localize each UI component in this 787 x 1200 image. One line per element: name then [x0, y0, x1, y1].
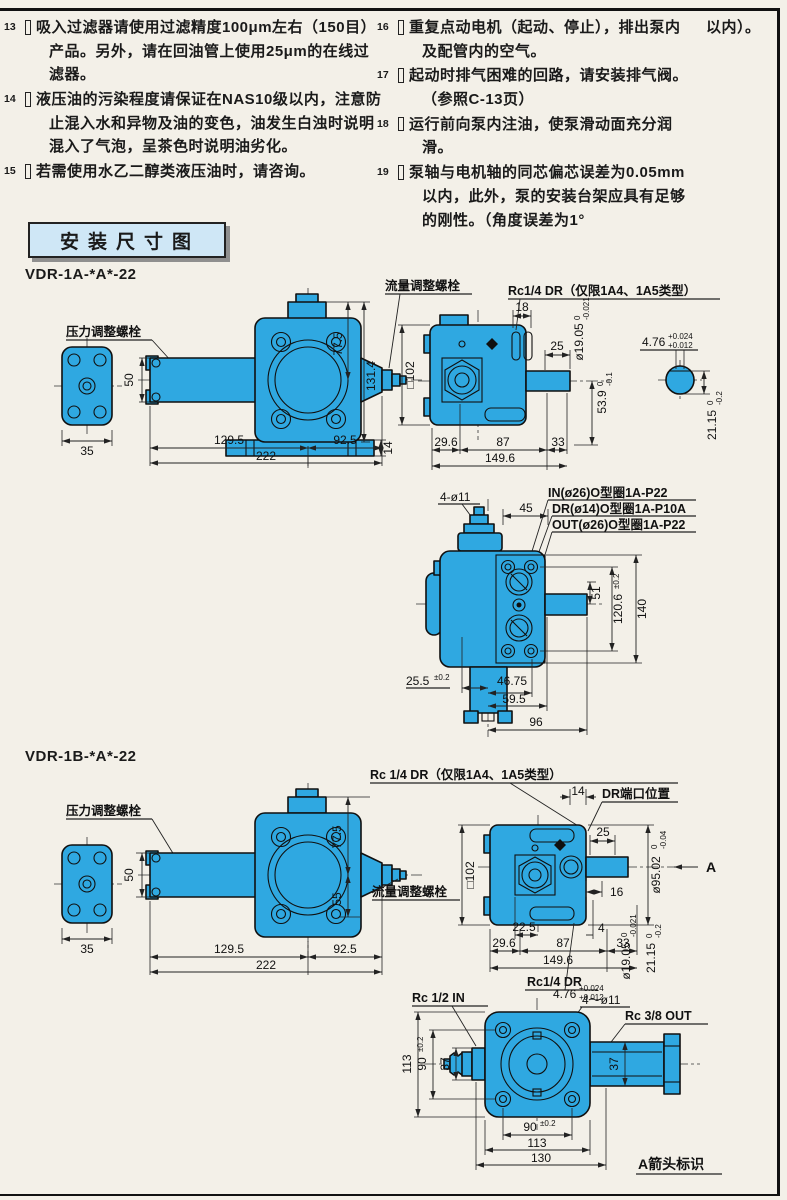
a-view-caption: A箭头标识	[636, 1156, 722, 1174]
dim-51: 51	[589, 586, 603, 600]
dim-37-right: 37	[607, 1057, 621, 1071]
svg-text:-0.2: -0.2	[715, 391, 724, 405]
dim-45: 45	[519, 501, 533, 515]
flange-view-1a: 35	[54, 338, 122, 458]
dim-16: 16	[610, 885, 624, 899]
note-text: 运行前向泵内注油，使泵滑动面充分润滑。	[409, 116, 673, 157]
svg-text:-0.04: -0.04	[659, 830, 668, 849]
note-19: 19泵轴与电机轴的同芯偏芯误差为0.05mm以内，此外，泵的安装台架应具有足够的…	[398, 161, 690, 232]
dim-25: 25	[596, 825, 610, 839]
dim-sq102: □102	[403, 361, 417, 389]
flange-view-1b: 35	[54, 837, 122, 956]
note-14: 14液压油的污染程度请保证在NAS10级以内，注意防止混入水和异物及油的变色，油…	[25, 88, 383, 159]
svg-text:0: 0	[645, 933, 654, 938]
model-label-vdr1b: VDR-1B-*A*-22	[25, 748, 137, 765]
dim-120-6: 120.6 ±0.2	[611, 573, 625, 624]
pump-side-view-1b	[138, 783, 422, 957]
svg-text:ø19.05: ø19.05	[619, 942, 633, 980]
note-text: 液压油的污染程度请保证在NAS10级以内，注意防止混入水和异物及油的变色，油发生…	[36, 91, 381, 155]
note-text: 若需使用水乙二醇类液压油时，请咨询。	[36, 163, 315, 180]
svg-text:ø19.05: ø19.05	[572, 323, 586, 361]
dim-92-5: 92.5	[333, 433, 357, 447]
rc38-out-label: Rc 3/8 OUT	[625, 1009, 692, 1023]
pump-side-view-1a	[138, 288, 422, 468]
svg-text:120.6: 120.6	[611, 594, 625, 624]
svg-text:±0.2: ±0.2	[612, 573, 621, 589]
dim-90-left: 90 ±0.2	[415, 1036, 429, 1071]
svg-text:-0.2: -0.2	[654, 924, 663, 938]
svg-text:53.9: 53.9	[595, 390, 609, 414]
dim-25-5: 25.5	[406, 674, 430, 688]
svg-text:0: 0	[706, 400, 715, 405]
dim-shaft-dia-19-b: ø19.05 0 -0.021	[619, 914, 638, 980]
dim-key-width: 4.76 +0.024 +0.012	[640, 332, 698, 369]
svg-text:+0.012: +0.012	[668, 341, 693, 350]
note-15: 15若需使用水乙二醇类液压油时，请咨询。	[25, 160, 383, 184]
dim-22-5: 22.5	[512, 920, 536, 934]
dim-222: 222	[256, 449, 276, 463]
note-17: 17起动时排气困难的回路，请安装排气阀。（参照C-13页）	[398, 64, 690, 111]
note-text: 起动时排气困难的回路，请安装排气阀。（参照C-13页）	[409, 67, 688, 108]
notes-column-2: 16重复点动电机（起动、停止），排出泵内及配管内的空气。 17起动时排气困难的回…	[398, 16, 690, 233]
dim-35: 35	[80, 444, 94, 458]
dim-77-5: 77.5	[331, 332, 345, 356]
section-title-box: 安装尺寸图	[28, 222, 226, 258]
dim-129-5: 129.5	[214, 433, 244, 447]
diagram-vdr1b: 35 压力调整螺栓 50	[30, 765, 760, 1000]
svg-text:ø95.02: ø95.02	[649, 856, 663, 894]
note-18: 18运行前向泵内注油，使泵滑动面充分润滑。	[398, 113, 690, 160]
svg-text:0: 0	[620, 932, 629, 937]
dim-95-02: ø95.02 0 -0.04	[649, 830, 668, 893]
dim-50: 50	[122, 868, 136, 882]
dim-4: 4	[598, 921, 605, 935]
svg-text:±0.2: ±0.2	[416, 1036, 425, 1052]
dim-50: 50	[122, 373, 136, 387]
in-oring-label: IN(ø26)O型圈1A-P22	[548, 485, 668, 500]
dim-46-75: 46.75	[497, 674, 527, 688]
dim-92-5: 92.5	[333, 942, 357, 956]
svg-text:0: 0	[573, 315, 582, 320]
dim-29-6: 29.6	[492, 936, 516, 950]
diagram-vdr1a: 35 压力调整螺栓	[30, 280, 730, 480]
diagram-a-view: Rc 1/2 IN 4～ø11 Rc 3/8 OUT	[400, 990, 760, 1185]
svg-text:0: 0	[596, 381, 605, 386]
dim-96: 96	[529, 715, 543, 729]
dr-oring-label: DR(ø14)O型圈1A-P10A	[552, 501, 686, 516]
dr-port-label: DR端口位置	[602, 786, 671, 801]
dim-37-left: 37	[438, 1057, 452, 1071]
catalog-page: 13吸入过滤器请使用过滤精度100μm左右（150目）产品。另外，请在回油管上使…	[0, 0, 787, 1200]
diagram-vdr1a-ports: IN(ø26)O型圈1A-P22 DR(ø14)O型圈1A-P10A OUT(ø…	[400, 485, 700, 745]
shaft-end-view-1a: 4.76 +0.024 +0.012 21.15 0 -0.2	[640, 332, 724, 440]
svg-text:±0.2: ±0.2	[540, 1119, 556, 1128]
dim-35: 35	[80, 942, 94, 956]
dim-222: 222	[256, 958, 276, 972]
pressure-screw-label: 压力调整螺栓	[66, 803, 142, 818]
svg-text:21.15: 21.15	[705, 410, 719, 440]
svg-text:+0.024: +0.024	[668, 332, 693, 341]
dim-53-9: 53.9 0 -0.1	[595, 372, 614, 414]
view-arrow-a: A	[706, 859, 716, 875]
a-view-label: A箭头标识	[638, 1156, 704, 1172]
dim-77-5: 77.5	[330, 825, 344, 849]
note-number: 19	[398, 165, 404, 180]
note-text: 泵轴与电机轴的同芯偏芯误差为0.05mm以内，此外，泵的安装台架应具有足够的刚性…	[409, 164, 686, 228]
svg-text:-0.1: -0.1	[605, 372, 614, 386]
dim-21-15: 21.15 0 -0.2	[705, 391, 724, 440]
notes-continuation: 以内）。	[706, 16, 776, 40]
rc12-in-label: Rc 1/2 IN	[412, 991, 465, 1005]
dr-port-position-callout: 14 DR端口位置	[560, 784, 678, 831]
dim-87: 87	[556, 936, 570, 950]
dim-140: 140	[635, 599, 649, 619]
dim-59-5: 59.5	[502, 692, 526, 706]
dim-sq102: □102	[463, 861, 477, 889]
note-19-continued: 以内）。	[706, 19, 761, 36]
notes-column-1: 13吸入过滤器请使用过滤精度100μm左右（150目）产品。另外，请在回油管上使…	[25, 16, 383, 185]
dim-87: 87	[496, 435, 510, 449]
note-13: 13吸入过滤器请使用过滤精度100μm左右（150目）产品。另外，请在回油管上使…	[25, 16, 383, 87]
out-oring-label: OUT(ø26)O型圈1A-P22	[552, 517, 685, 532]
note-number: 16	[398, 20, 404, 35]
section-title: 安装尺寸图	[60, 227, 200, 254]
note-number: 14	[25, 92, 31, 107]
dim-18: 18	[515, 300, 529, 314]
dim-14-dr: 14	[571, 784, 585, 798]
svg-text:-0.021: -0.021	[582, 297, 591, 320]
note-number: 13	[25, 20, 31, 35]
dim-4xd11: 4～ø11	[582, 993, 621, 1007]
dim-29-6: 29.6	[434, 435, 458, 449]
pressure-screw-label: 压力调整螺栓	[66, 324, 142, 339]
note-text: 重复点动电机（起动、停止），排出泵内及配管内的空气。	[409, 19, 681, 60]
svg-text:4.76: 4.76	[642, 335, 666, 349]
dim-25: 25	[550, 339, 564, 353]
dim-90-bottom: 90	[523, 1120, 537, 1134]
dim-130: 130	[531, 1151, 551, 1165]
note-number: 17	[398, 68, 404, 83]
dim-131-4: 131.4	[364, 361, 378, 391]
dim-149-6: 149.6	[485, 451, 515, 465]
dim-21-15-b: 21.15 0 -0.2	[644, 924, 663, 973]
svg-text:21.15: 21.15	[644, 943, 658, 973]
flow-screw-label: 流量调整螺栓	[372, 884, 448, 899]
note-number: 15	[25, 164, 31, 179]
dim-55: 55	[330, 892, 344, 906]
dim-shaft-dia-19: ø19.05 0 -0.021	[572, 297, 591, 361]
svg-text:±0.2: ±0.2	[434, 673, 450, 682]
note-16: 16重复点动电机（起动、停止），排出泵内及配管内的空气。	[398, 16, 690, 63]
rc14-dr-label: Rc 1/4 DR（仅限1A4、1A5类型）	[370, 767, 562, 782]
flow-screw-label: 流量调整螺栓	[385, 278, 461, 293]
note-number: 18	[398, 117, 404, 132]
svg-text:90: 90	[415, 1057, 429, 1071]
rc14-dr-label: Rc1/4 DR（仅限1A4、1A5类型）	[508, 283, 696, 298]
svg-text:0: 0	[650, 844, 659, 849]
dim-14: 14	[381, 441, 395, 455]
dim-4xd11: 4-ø11	[440, 490, 471, 504]
svg-text:-0.021: -0.021	[629, 914, 638, 937]
dim-113-bottom: 113	[527, 1136, 546, 1150]
dim-113-left: 113	[400, 1054, 414, 1073]
note-text: 吸入过滤器请使用过滤精度100μm左右（150目）产品。另外，请在回油管上使用2…	[36, 19, 376, 83]
dim-33: 33	[551, 435, 565, 449]
dim-129-5: 129.5	[214, 942, 244, 956]
